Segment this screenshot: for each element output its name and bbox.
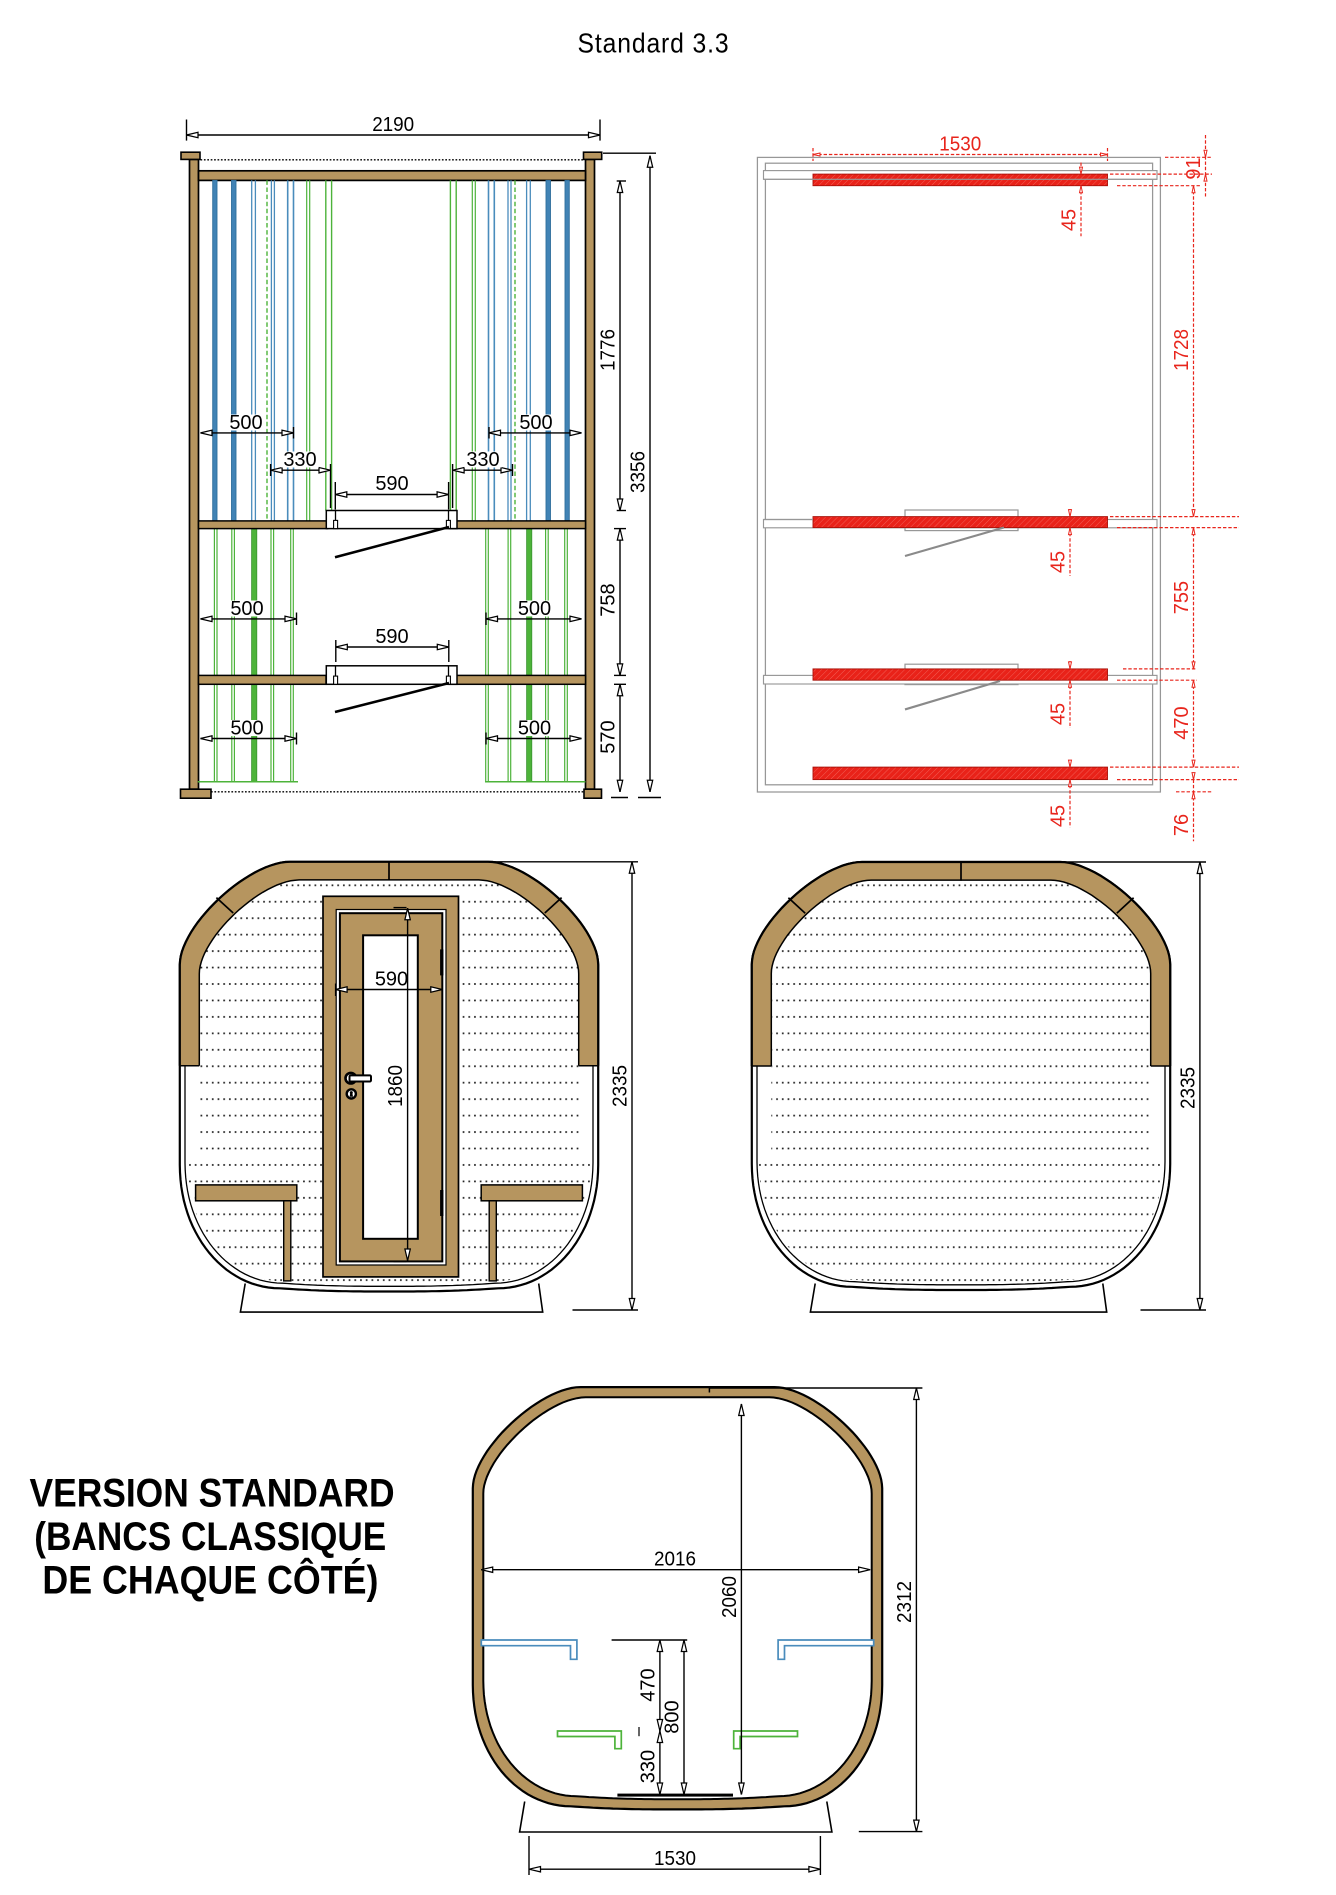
svg-text:DE CHAQUE CÔTÉ): DE CHAQUE CÔTÉ) <box>42 1557 378 1603</box>
svg-text:500: 500 <box>518 718 551 740</box>
svg-text:330: 330 <box>637 1750 659 1783</box>
svg-text:Standard 3.3: Standard 3.3 <box>578 28 730 59</box>
svg-text:(BANCS CLASSIQUE: (BANCS CLASSIQUE <box>34 1515 386 1559</box>
svg-text:470: 470 <box>637 1668 659 1701</box>
svg-text:590: 590 <box>375 473 408 495</box>
svg-text:755: 755 <box>1171 581 1193 614</box>
svg-text:500: 500 <box>230 598 263 620</box>
svg-text:45: 45 <box>1059 209 1081 231</box>
svg-text:500: 500 <box>518 598 551 620</box>
svg-text:570: 570 <box>598 720 620 753</box>
svg-text:1776: 1776 <box>598 329 620 371</box>
svg-text:590: 590 <box>375 969 408 991</box>
svg-text:800: 800 <box>662 1700 684 1733</box>
svg-text:91: 91 <box>1183 157 1205 179</box>
svg-text:1860: 1860 <box>385 1065 407 1107</box>
svg-text:2335: 2335 <box>610 1065 632 1107</box>
svg-text:45: 45 <box>1048 703 1070 725</box>
svg-text:2016: 2016 <box>654 1549 696 1571</box>
svg-text:330: 330 <box>466 449 499 471</box>
svg-text:2312: 2312 <box>894 1581 916 1623</box>
svg-text:2190: 2190 <box>372 114 414 136</box>
svg-text:1530: 1530 <box>654 1848 696 1870</box>
svg-text:45: 45 <box>1048 805 1070 827</box>
svg-text:VERSION STANDARD: VERSION STANDARD <box>30 1472 395 1516</box>
svg-text:2060: 2060 <box>719 1576 741 1618</box>
svg-text:1728: 1728 <box>1171 329 1193 371</box>
svg-text:2335: 2335 <box>1177 1067 1199 1109</box>
svg-text:330: 330 <box>283 449 316 471</box>
svg-text:1530: 1530 <box>939 134 981 156</box>
svg-text:758: 758 <box>598 583 620 616</box>
svg-text:3356: 3356 <box>628 451 650 493</box>
svg-text:470: 470 <box>1171 706 1193 739</box>
svg-text:500: 500 <box>230 718 263 740</box>
svg-text:45: 45 <box>1048 551 1070 573</box>
svg-text:590: 590 <box>375 626 408 648</box>
svg-text:500: 500 <box>229 412 262 434</box>
svg-text:500: 500 <box>519 412 552 434</box>
svg-text:76: 76 <box>1171 814 1193 836</box>
